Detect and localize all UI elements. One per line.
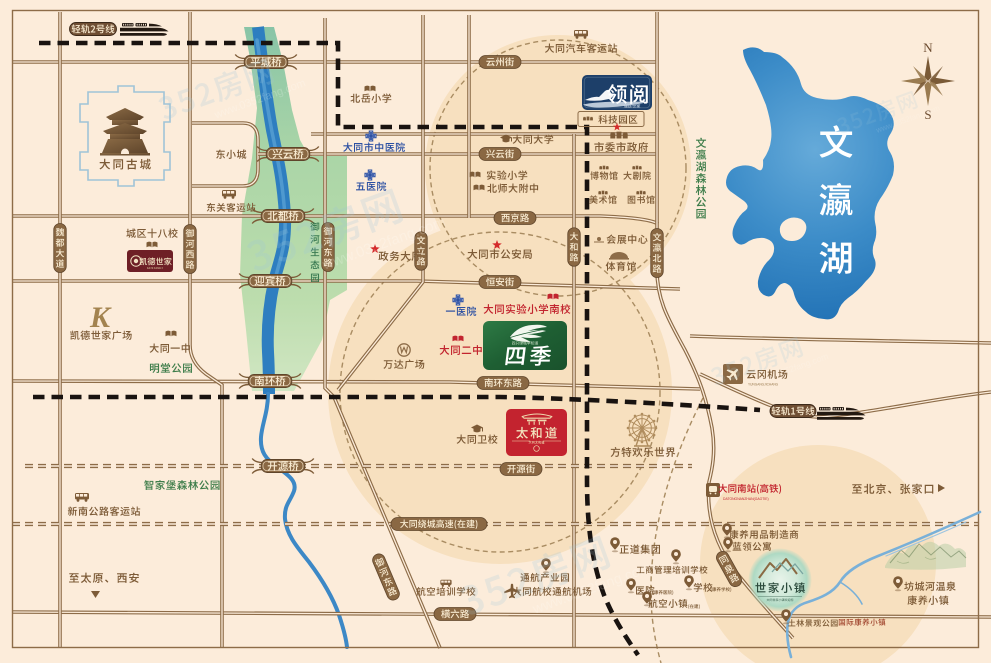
svg-text:K: K <box>89 301 112 334</box>
svg-text:N: N <box>923 40 933 55</box>
svg-text:DATONGNANZHAN(GAOTIE): DATONGNANZHAN(GAOTIE) <box>723 497 769 501</box>
